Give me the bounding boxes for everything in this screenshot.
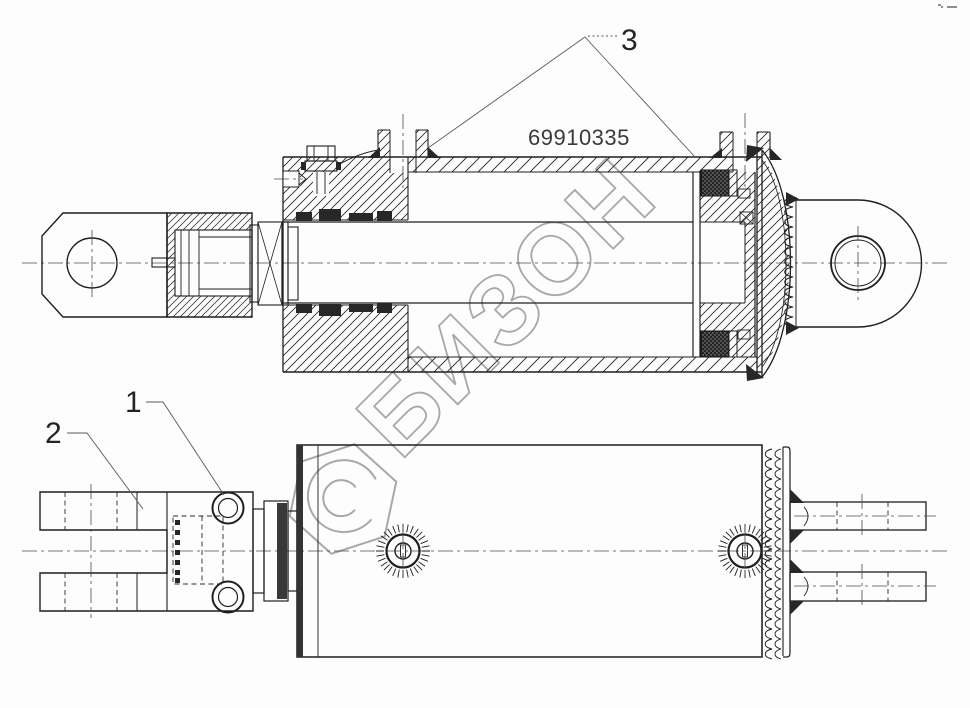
hydraulic-cylinder-technical-drawing: БИЗОН	[0, 0, 970, 708]
clamp-bolt-top	[213, 493, 244, 524]
gland-assembly	[274, 146, 416, 372]
rod-thread-section	[250, 222, 298, 305]
callout-3: 3	[621, 24, 638, 57]
corner-smudge	[938, 4, 957, 8]
weld-seam-right	[762, 447, 790, 659]
callout-2: 2	[45, 417, 62, 450]
base-eye	[786, 192, 922, 335]
rod-clevis-section	[42, 213, 167, 317]
fork-prongs-right	[790, 489, 936, 615]
callout-2-group: 2	[45, 417, 143, 509]
parts-catalog-page: БИЗОН	[0, 0, 970, 708]
piston-seal-bottom	[701, 331, 729, 357]
callout-1-leader	[146, 402, 224, 495]
callout-1-group: 1	[125, 386, 224, 495]
callout-1: 1	[125, 386, 142, 419]
callout-2-leader	[67, 433, 143, 509]
part-number: 69910335	[528, 125, 630, 150]
rod-end-block	[152, 213, 252, 317]
clamp-bolt-bottom	[213, 582, 244, 613]
piston-seal-top	[701, 170, 729, 196]
hidden-rod-end	[173, 516, 223, 584]
rod-seals	[296, 209, 392, 316]
piston-assembly	[693, 170, 755, 357]
external-view: 1 2	[22, 386, 948, 659]
